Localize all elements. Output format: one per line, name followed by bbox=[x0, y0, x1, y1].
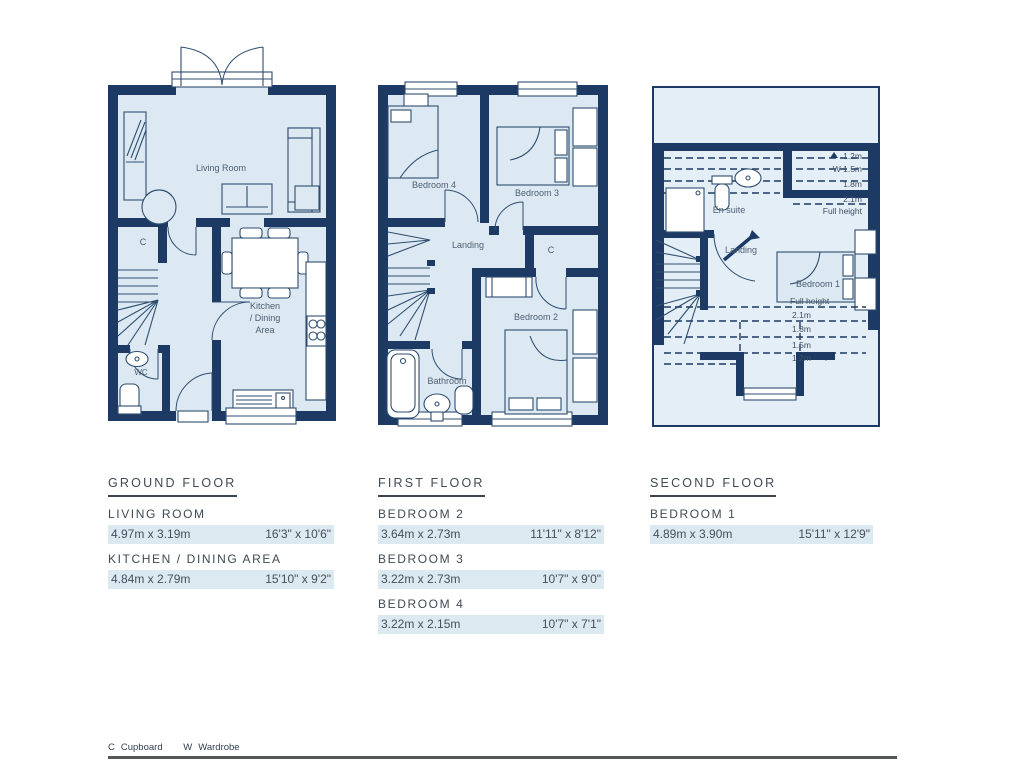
imperial-dimension: 16'3" x 10'6" bbox=[265, 527, 331, 541]
imperial-dimension: 10'7" x 7'1" bbox=[542, 617, 601, 631]
room-dimensions: 3.64m x 2.73m 11'11" x 8'12" bbox=[378, 525, 604, 544]
kitchen-window bbox=[226, 408, 296, 424]
kitchen-label-2: / Dining bbox=[250, 313, 281, 323]
ground-floor-table: GROUND FLOOR LIVING ROOM 4.97m x 3.19m 1… bbox=[108, 474, 334, 589]
living-room-label: Living Room bbox=[196, 163, 246, 173]
ensuite-label: En suite bbox=[713, 205, 746, 215]
full-height-bottom-label: Full height bbox=[790, 296, 830, 306]
bedroom2-label: Bedroom 2 bbox=[514, 312, 558, 322]
imperial-dimension: 15'10" x 9'2" bbox=[265, 572, 331, 586]
second-floor-title: SECOND FLOOR bbox=[650, 476, 776, 497]
legend-wardrobe: WWardrobe bbox=[183, 742, 239, 753]
floorplans-svg: Living Room C WC bbox=[0, 0, 1024, 470]
legend-key-c: C bbox=[108, 742, 115, 753]
legend-cupboard: CCupboard bbox=[108, 742, 163, 753]
eave-label-1-2m-bottom: 1.2m bbox=[792, 353, 811, 363]
bathroom-label: Bathroom bbox=[427, 376, 466, 386]
metric-dimension: 3.22m x 2.73m bbox=[381, 572, 460, 586]
legend: CCupboard WWardrobe bbox=[108, 742, 258, 753]
second-floor-plan: 1.2m W 1.5m 1.8m 2.1m Full height En sui… bbox=[653, 87, 879, 426]
second-landing-label: Landing bbox=[725, 245, 757, 255]
ground-floor-title: GROUND FLOOR bbox=[108, 476, 237, 497]
room-dimensions: 4.89m x 3.90m 15'11" x 12'9" bbox=[650, 525, 873, 544]
legend-label-cupboard: Cupboard bbox=[121, 742, 163, 753]
imperial-dimension: 11'11" x 8'12" bbox=[530, 527, 601, 541]
room-dimensions: 4.84m x 2.79m 15'10" x 9'2" bbox=[108, 570, 334, 589]
eave-label-1-8m-top: 1.8m bbox=[843, 179, 862, 189]
metric-dimension: 4.97m x 3.19m bbox=[111, 527, 190, 541]
second-floor-table: SECOND FLOOR BEDROOM 1 4.89m x 3.90m 15'… bbox=[650, 474, 873, 544]
kitchen-counter bbox=[306, 262, 326, 400]
dormer-window bbox=[744, 388, 796, 400]
eave-label-2-1m-top: 2.1m bbox=[843, 194, 862, 204]
media-unit bbox=[124, 112, 146, 200]
bedroom1-label: Bedroom 1 bbox=[796, 279, 840, 289]
room-name: BEDROOM 4 bbox=[378, 597, 604, 611]
eave-label-1-2m-top: 1.2m bbox=[843, 151, 862, 161]
first-floor-title: FIRST FLOOR bbox=[378, 476, 485, 497]
eave-label-2-1m-bottom: 2.1m bbox=[792, 310, 811, 320]
eave-label-1-5m-bottom: 1.5m bbox=[792, 340, 811, 350]
metric-dimension: 4.89m x 3.90m bbox=[653, 527, 732, 541]
room-name: BEDROOM 1 bbox=[650, 507, 873, 521]
metric-dimension: 3.64m x 2.73m bbox=[381, 527, 460, 541]
ground-floor-plan: Living Room C WC bbox=[108, 47, 336, 424]
room-name: BEDROOM 3 bbox=[378, 552, 604, 566]
eave-label-w-1-5m: W 1.5m bbox=[833, 164, 862, 174]
full-height-top-label: Full height bbox=[823, 206, 863, 216]
armchair bbox=[142, 190, 176, 224]
room-name: BEDROOM 2 bbox=[378, 507, 604, 521]
metric-dimension: 4.84m x 2.79m bbox=[111, 572, 190, 586]
bottom-rule bbox=[108, 756, 897, 759]
legend-key-w: W bbox=[183, 742, 192, 753]
french-doors bbox=[172, 47, 272, 87]
kitchen-label-1: Kitchen bbox=[250, 301, 280, 311]
dining-table bbox=[222, 228, 308, 298]
imperial-dimension: 15'11" x 12'9" bbox=[798, 527, 870, 541]
legend-label-wardrobe: Wardrobe bbox=[198, 742, 239, 753]
metric-dimension: 3.22m x 2.15m bbox=[381, 617, 460, 631]
room-dimensions: 4.97m x 3.19m 16'3" x 10'6" bbox=[108, 525, 334, 544]
first-floor-plan: Bedroom 4 Bedroom 3 Landing C bbox=[378, 82, 608, 426]
first-landing-label: Landing bbox=[452, 240, 484, 250]
imperial-dimension: 10'7" x 9'0" bbox=[542, 572, 601, 586]
sofa-center bbox=[222, 184, 272, 214]
first-floor-table: FIRST FLOOR BEDROOM 2 3.64m x 2.73m 11'1… bbox=[378, 474, 604, 634]
first-cupboard-label: C bbox=[548, 245, 555, 255]
bedroom4-label: Bedroom 4 bbox=[412, 180, 456, 190]
room-dimensions: 3.22m x 2.73m 10'7" x 9'0" bbox=[378, 570, 604, 589]
wc-label: WC bbox=[134, 368, 148, 377]
room-name: KITCHEN / DINING AREA bbox=[108, 552, 334, 566]
room-name: LIVING ROOM bbox=[108, 507, 334, 521]
bedroom3-label: Bedroom 3 bbox=[515, 188, 559, 198]
kitchen-label-3: Area bbox=[255, 325, 274, 335]
ground-cupboard-label: C bbox=[140, 237, 147, 247]
room-dimensions: 3.22m x 2.15m 10'7" x 7'1" bbox=[378, 615, 604, 634]
floorplan-page: Living Room C WC bbox=[0, 0, 1024, 768]
eave-label-1-8m-bottom: 1.8m bbox=[792, 324, 811, 334]
bedroom4-furniture bbox=[388, 94, 438, 178]
side-table bbox=[295, 186, 319, 210]
